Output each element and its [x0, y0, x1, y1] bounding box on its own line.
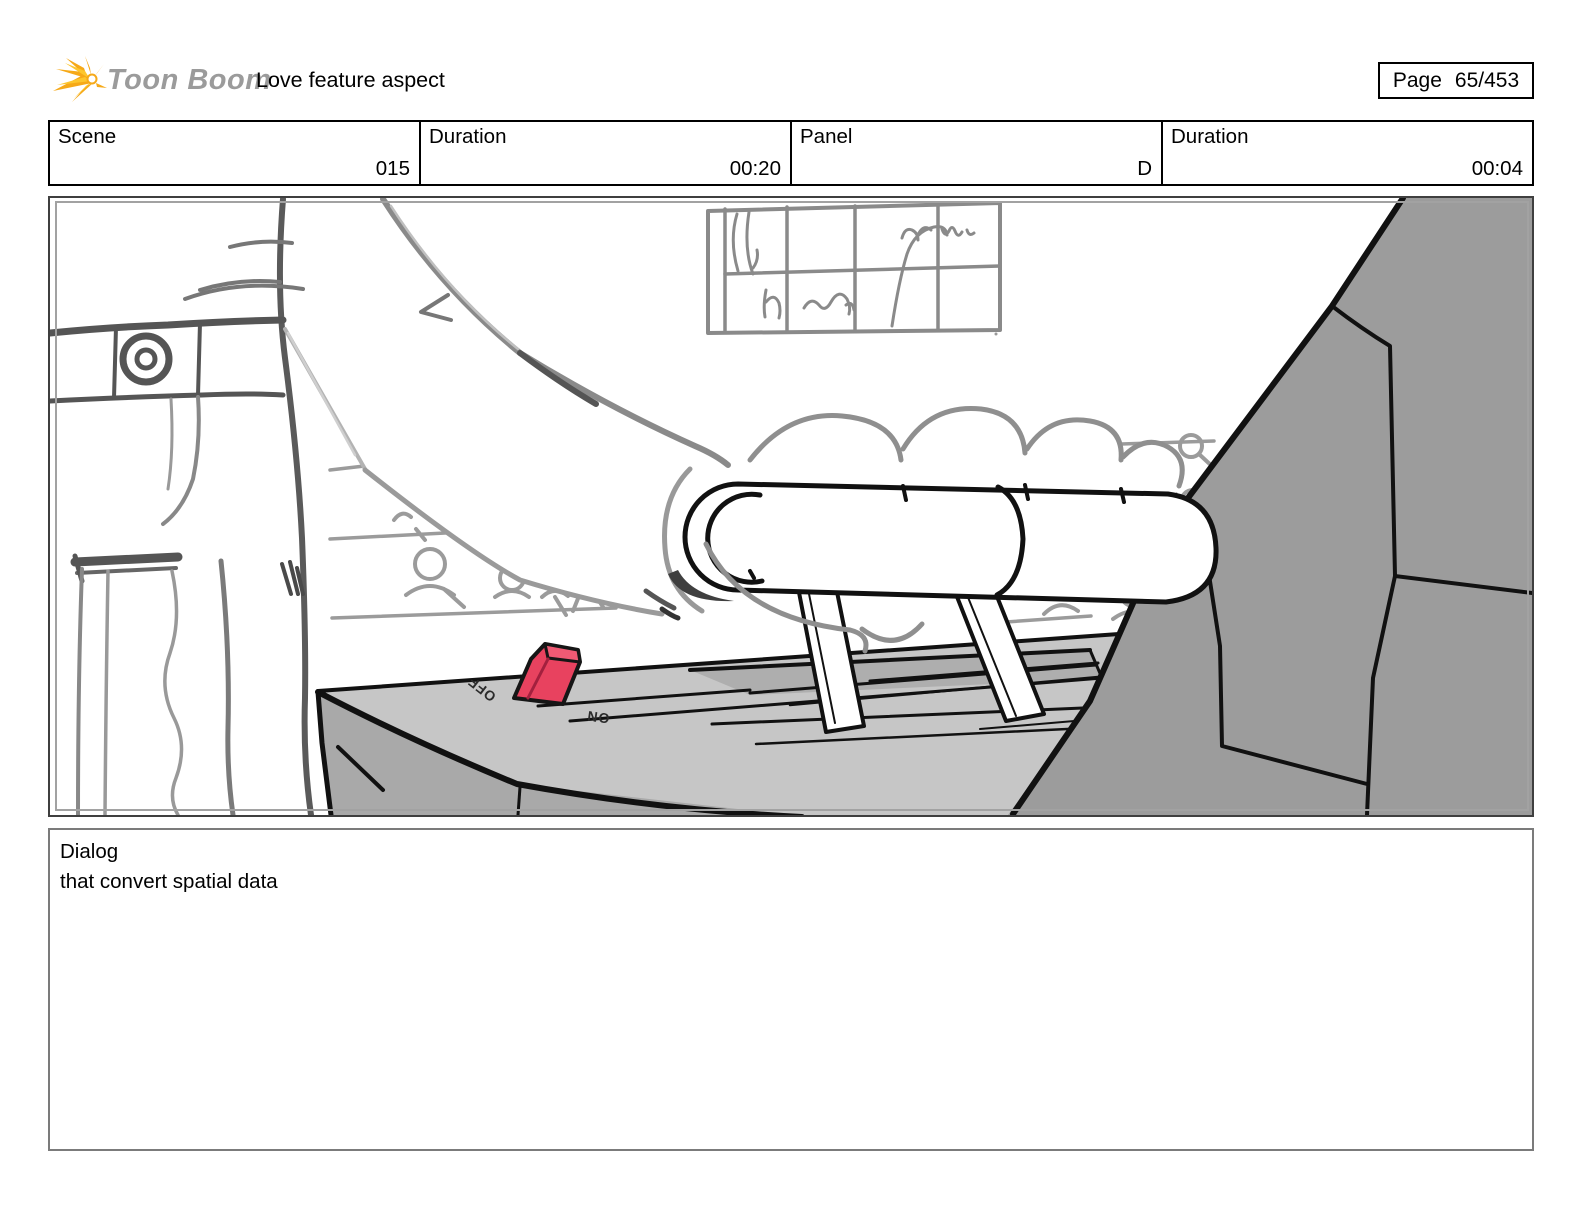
scene-value: 015	[376, 157, 410, 181]
panel-duration-label: Duration	[1171, 125, 1249, 149]
info-row: Scene 015 Duration 00:20 Panel D Duratio…	[48, 120, 1534, 186]
page-value: 65/453	[1455, 69, 1519, 93]
dialog-label: Dialog	[60, 837, 1522, 867]
dialog-box: Dialog that convert spatial data	[48, 828, 1534, 1151]
info-cell-scene: Scene 015	[50, 122, 419, 184]
panel-drawing: OFF ON	[50, 198, 1532, 815]
scene-label: Scene	[58, 125, 116, 149]
panel-value: D	[1137, 157, 1152, 181]
info-cell-scene-duration: Duration 00:20	[419, 122, 790, 184]
info-cell-panel: Panel D	[790, 122, 1161, 184]
logo-text: Toon Boom	[107, 64, 272, 97]
switch-on-label: ON	[585, 708, 610, 727]
panel-label: Panel	[800, 125, 852, 149]
storyboard-panel: OFF ON	[48, 196, 1534, 817]
page-label: Page	[1393, 69, 1442, 93]
info-cell-panel-duration: Duration 00:04	[1161, 122, 1532, 184]
scene-duration-label: Duration	[429, 125, 507, 149]
page-number-box: Page 65/453	[1378, 62, 1534, 99]
dialog-text: that convert spatial data	[60, 867, 1522, 897]
panel-duration-value: 00:04	[1472, 157, 1523, 181]
scene-duration-value: 00:20	[730, 157, 781, 181]
window-sketch	[708, 203, 1000, 336]
toonboom-logo-icon	[52, 56, 108, 104]
document-title: Love feature aspect	[256, 68, 445, 93]
